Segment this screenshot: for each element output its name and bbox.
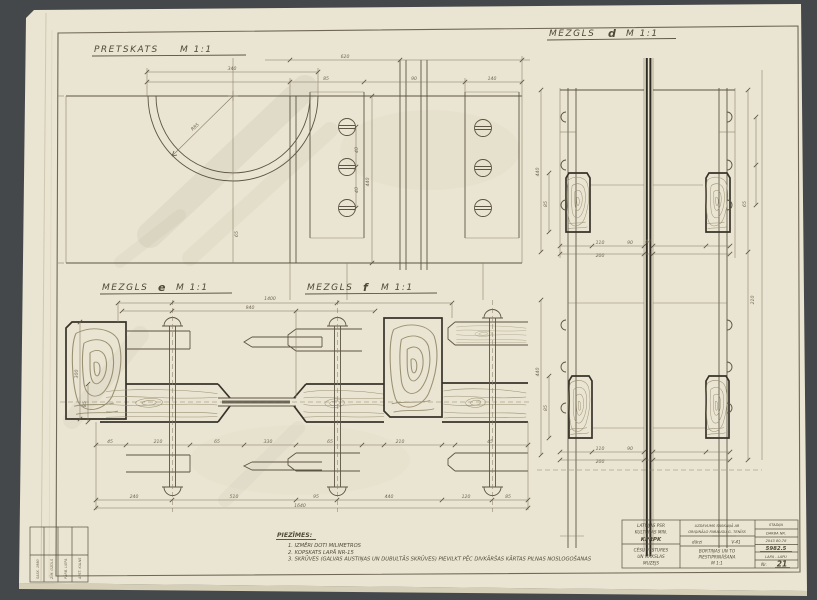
- work-number-label: DARBA NR.: [766, 532, 786, 536]
- dimension-label: 200: [596, 253, 605, 259]
- dimension-label: 340: [228, 66, 237, 72]
- sheet-no-prefix: Nr.: [761, 562, 767, 567]
- dimension-label: 140: [488, 76, 497, 82]
- org-abbrev: KPRPK: [641, 537, 662, 543]
- dimension-label: 65: [742, 201, 748, 207]
- view-scale: M 1:1: [626, 29, 659, 39]
- note-line: 3. SKRŪVES (GALVAS AUSTIŅAS UN DUBULTĀS …: [288, 556, 592, 563]
- subject-scale: M 1:1: [711, 561, 723, 566]
- object-line: MUZEJS: [643, 561, 659, 566]
- view-scale: M 1:1: [176, 283, 209, 293]
- object-line: CĒSU VĒSTURES: [634, 548, 669, 553]
- dimension-label: 620: [341, 54, 350, 60]
- note-line: 2. KOPSKATS LAPĀ NR-15: [288, 549, 354, 556]
- dimension-label: 45: [107, 439, 113, 445]
- dimension-label: 90: [627, 240, 633, 246]
- dimension-label: 440: [365, 178, 371, 187]
- org-line: LATVIJAS PSR: [637, 523, 665, 528]
- dimension-label: 440: [385, 494, 394, 500]
- dimension-label: 44: [645, 239, 651, 245]
- view-title: MEZGLS: [307, 283, 353, 293]
- dimension-label: 85: [82, 401, 88, 407]
- dimension-label: 120: [462, 494, 471, 500]
- dimension-label: 45: [487, 439, 493, 445]
- dimension-label: 1400: [264, 296, 276, 302]
- dimension-label: 90: [411, 76, 417, 82]
- view-scale: M 1:1: [381, 283, 414, 293]
- dimension-label: 440: [535, 368, 541, 377]
- org-line: KULTŪRAS MIN.: [635, 530, 667, 535]
- stage-label: STADIJA: [769, 523, 783, 527]
- dimension-label: 65: [234, 231, 240, 237]
- node-letter: e: [158, 281, 166, 294]
- scanned-blueprint-photo: PRETSKATS M 1:1: [0, 0, 817, 600]
- dimension-label: 85: [543, 201, 549, 207]
- dimension-label: 240: [130, 494, 139, 500]
- dimension-label: 110: [596, 446, 605, 452]
- dimension-label: 85: [505, 494, 511, 500]
- dimension-label: 1640: [294, 503, 306, 509]
- dimension-label: 210: [154, 439, 163, 445]
- dimension-label: 940: [246, 305, 255, 311]
- dimension-label: 90: [627, 446, 633, 452]
- dimension-label: 210: [750, 296, 756, 305]
- dimension-label: 440: [535, 168, 541, 177]
- stamp-entry: ZĪM. OZOLS: [49, 558, 54, 580]
- dimension-label: 65: [214, 439, 220, 445]
- subject-line: PIESTIPRINĀŠANA: [698, 555, 735, 560]
- blueprint-sheet: PRETSKATS M 1:1: [0, 0, 817, 600]
- notes-title: PIEZĪMES:: [277, 530, 312, 539]
- work-number: 2043 80-78: [766, 539, 787, 543]
- dimension-label: 300: [74, 370, 80, 379]
- stamp-entry: SASK. 1980: [36, 559, 40, 579]
- view-title: PRETSKATS: [94, 45, 159, 55]
- dimension-label: 65: [327, 439, 333, 445]
- stage-right: V-41: [731, 540, 741, 545]
- paper-sheet: [19, 4, 807, 591]
- note-line: 1. IZMĒRI DOTI MILIMETROS: [288, 542, 362, 549]
- stamp-entry: APST. KALNS: [78, 557, 82, 580]
- dimension-label: 40: [354, 187, 360, 193]
- dimension-label: 330: [264, 439, 273, 445]
- stamp-entry: PĀRB. LIEPA: [63, 558, 68, 579]
- dimension-label: 85: [323, 76, 329, 82]
- view-scale: M 1:1: [180, 45, 213, 55]
- dimension-label: 110: [596, 240, 605, 246]
- dimension-label: 85: [543, 405, 549, 411]
- task-line: UZDEVUMS SASKAŅĀ AR: [695, 523, 740, 528]
- dimension-label: 210: [396, 439, 405, 445]
- sheet-label: LAPA - LAPU: [765, 555, 787, 559]
- node-letter: d: [608, 27, 616, 40]
- stage-left: dārzi: [692, 540, 703, 545]
- object-line: UN MĀKSLAS: [637, 554, 665, 559]
- project-number: 5982.5: [766, 546, 787, 552]
- dimension-label: 510: [230, 494, 239, 500]
- dimension-label: 200: [596, 459, 605, 465]
- task-line: ORIĢINĀLO PARAUGU G. TENĪSS: [688, 529, 746, 534]
- dimension-label: 40: [354, 147, 360, 153]
- view-title: MEZGLS: [549, 29, 595, 39]
- dimension-label: 95: [313, 494, 319, 500]
- view-title: MEZGLS: [102, 283, 148, 293]
- subject-line: BORTIŅAS UN TO: [699, 549, 736, 554]
